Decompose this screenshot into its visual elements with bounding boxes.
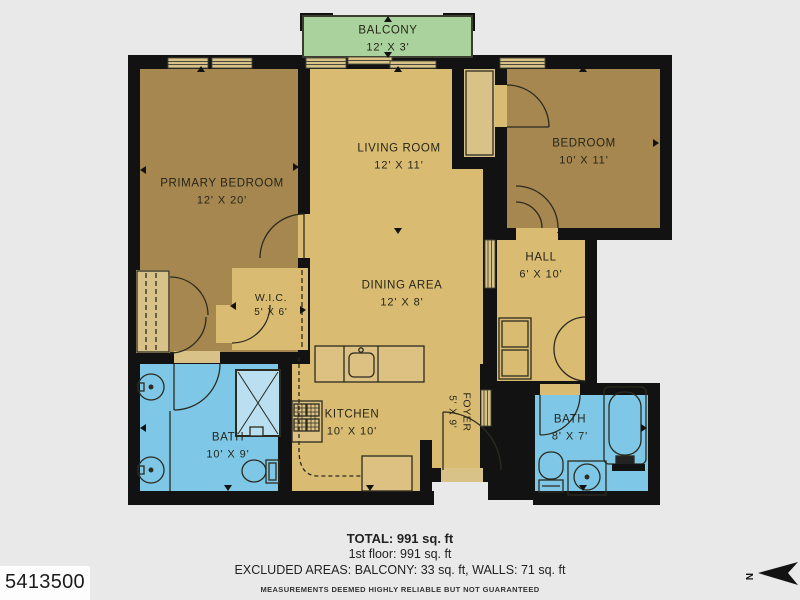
label-living-room: LIVING ROOM 12' X 11' — [357, 143, 440, 171]
label-bath-left: BATH 10' X 9' — [206, 432, 249, 460]
door-opening — [298, 214, 310, 258]
door-opening — [441, 468, 483, 482]
room-dining-east — [452, 169, 483, 364]
door-opening — [174, 351, 220, 363]
label-foyer: FOYER 5' X 9' — [447, 392, 472, 431]
listing-id-box: 5413500 — [0, 566, 90, 600]
label-bedroom: BEDROOM 10' X 11' — [552, 138, 616, 166]
label-balcony: BALCONY 12' X 3' — [358, 25, 417, 53]
excluded-areas: EXCLUDED AREAS: BALCONY: 33 sq. ft, WALL… — [0, 563, 800, 578]
door-opening — [516, 228, 558, 240]
wall-segment — [452, 69, 464, 159]
listing-id: 5413500 — [0, 566, 90, 594]
label-primary-bedroom: PRIMARY BEDROOM 12' X 20' — [160, 178, 284, 206]
door-opening — [495, 85, 507, 127]
kitchen-strip — [420, 364, 432, 440]
label-dining-area: DINING AREA 12' X 8' — [362, 280, 443, 308]
label-kitchen: KITCHEN 10' X 10' — [325, 409, 380, 437]
wardrobe — [136, 270, 170, 353]
wall-segment — [488, 381, 535, 500]
hall-closets — [497, 317, 585, 381]
wall-segment — [278, 364, 292, 505]
wall-segment — [585, 240, 597, 395]
wall-segment — [420, 440, 432, 505]
closet-bedroom — [464, 69, 495, 157]
room-bath-left — [140, 364, 278, 491]
wall-segment — [660, 55, 672, 240]
door-opening — [216, 305, 232, 343]
label-hall: HALL 6' X 10' — [519, 252, 562, 280]
disclaimer: MEASUREMENTS DEEMED HIGHLY RELIABLE BUT … — [0, 585, 800, 594]
wall-segment — [533, 491, 660, 505]
room-bath-right — [535, 395, 648, 491]
label-bath-right: BATH 8' X 7' — [552, 414, 588, 442]
label-wic: W.I.C. 5' X 6' — [254, 293, 287, 318]
total-area: TOTAL: 991 sq. ft — [0, 531, 800, 547]
floor-area: 1st floor: 991 sq. ft — [0, 547, 800, 562]
room-living-dining — [310, 69, 452, 364]
door-opening — [540, 384, 580, 395]
floorplan-canvas: N BALCONY 12' X 3' PRIMARY BEDROOM 12' X… — [0, 0, 800, 600]
area-summary: TOTAL: 991 sq. ft 1st floor: 991 sq. ft … — [0, 531, 800, 594]
wall-segment — [648, 383, 660, 505]
